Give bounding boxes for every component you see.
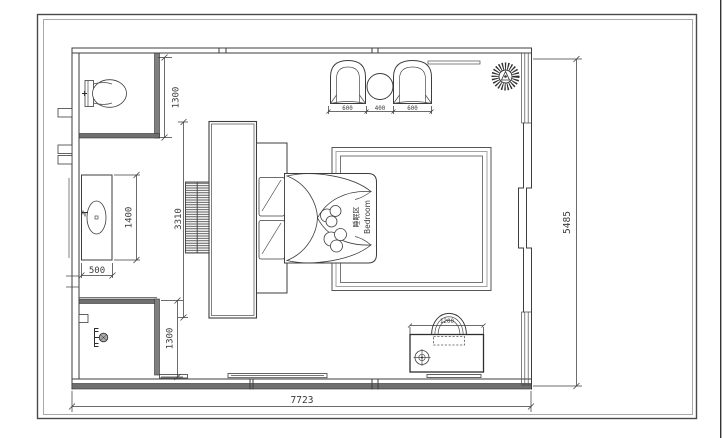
svg-text:1300: 1300 [166, 328, 176, 350]
side-table-icon [367, 74, 393, 100]
svg-text:5485: 5485 [562, 211, 573, 234]
dim-desk-width: 1200 [408, 319, 486, 334]
armchair-left-icon [331, 61, 366, 104]
pillow [259, 178, 285, 217]
cad-floor-plan-page: 睡眠区 Bedroom [0, 0, 722, 438]
shower-head-icon [95, 329, 108, 347]
dim-armchairs: 600 400 600 [327, 106, 434, 114]
right-wall [519, 48, 532, 389]
svg-text:1200: 1200 [440, 319, 454, 325]
room-label-zh: 睡眠区 [353, 207, 361, 228]
dim-vanity-depth: 500 [79, 263, 116, 279]
svg-text:3310: 3310 [174, 208, 184, 230]
svg-text:500: 500 [89, 266, 105, 276]
wc-room [79, 53, 160, 138]
room-label-en: Bedroom [363, 200, 372, 234]
plant-icon [495, 66, 516, 87]
wall-niche [428, 61, 480, 64]
headboard [257, 143, 288, 293]
tv-wall [209, 122, 257, 319]
window-upper [522, 53, 532, 123]
window-lower [522, 312, 532, 385]
dim-overall-width: 7723 [69, 391, 534, 412]
sink-icon [87, 201, 106, 234]
dim-overall-height: 5485 [533, 56, 582, 389]
svg-text:1400: 1400 [125, 207, 135, 229]
dim-vanity-length: 1400 [114, 172, 140, 263]
dim-wc-depth: 1300 [158, 55, 182, 141]
toilet-icon [82, 80, 127, 108]
pillow [259, 221, 285, 260]
dim-shower-depth: 1300 [161, 298, 183, 381]
svg-text:400: 400 [375, 106, 386, 112]
svg-text:600: 600 [407, 106, 418, 112]
bench [228, 374, 327, 378]
armchair-right-icon [394, 61, 432, 104]
svg-text:600: 600 [342, 106, 353, 112]
vanity [82, 175, 113, 260]
desk-front-strip [427, 375, 481, 378]
tv-icon [186, 182, 210, 253]
svg-text:1300: 1300 [172, 87, 182, 109]
svg-text:7723: 7723 [291, 395, 314, 406]
floor-plan-canvas: 睡眠区 Bedroom [0, 0, 722, 438]
